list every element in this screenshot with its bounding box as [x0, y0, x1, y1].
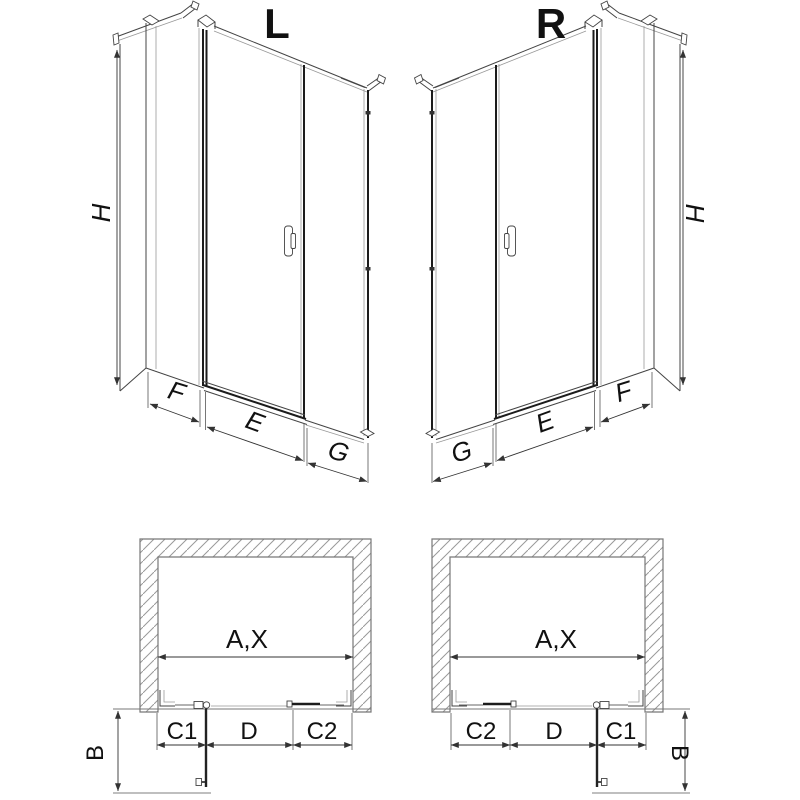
label-c2-left: C2: [307, 718, 338, 745]
dim-label-e-right: E: [532, 404, 559, 438]
label-opening-left: A,X: [226, 624, 268, 654]
label-c1-left: C1: [167, 718, 198, 745]
plan-view-left: A,X C1 D C2 B: [82, 539, 371, 793]
dim-label-g-left: G: [325, 434, 353, 469]
label-opening-right: A,X: [535, 624, 577, 654]
label-b-left: B: [82, 745, 109, 761]
view-title-right: R: [536, 0, 566, 47]
label-b-right: B: [666, 745, 693, 761]
dim-label-g-right: G: [447, 434, 475, 469]
iso-view-left: L H F E G: [86, 0, 386, 483]
shower-door-technical-diagram: L H F E G R H F E G A,X C1 D C2 B A,X C2…: [0, 0, 800, 800]
label-d-right: D: [545, 718, 562, 745]
label-d-left: D: [240, 718, 257, 745]
label-c2-right: C2: [466, 718, 497, 745]
plan-view-right: A,X C2 D C1 B: [432, 539, 693, 793]
dim-label-h-right: H: [680, 204, 710, 223]
dim-label-f-right: F: [611, 374, 637, 408]
dim-label-e-left: E: [242, 404, 269, 438]
iso-view-right: R H F E G: [415, 0, 711, 483]
dim-label-f-left: F: [165, 375, 191, 409]
label-c1-right: C1: [606, 718, 637, 745]
dim-label-h-left: H: [86, 203, 116, 222]
view-title-left: L: [264, 0, 290, 47]
